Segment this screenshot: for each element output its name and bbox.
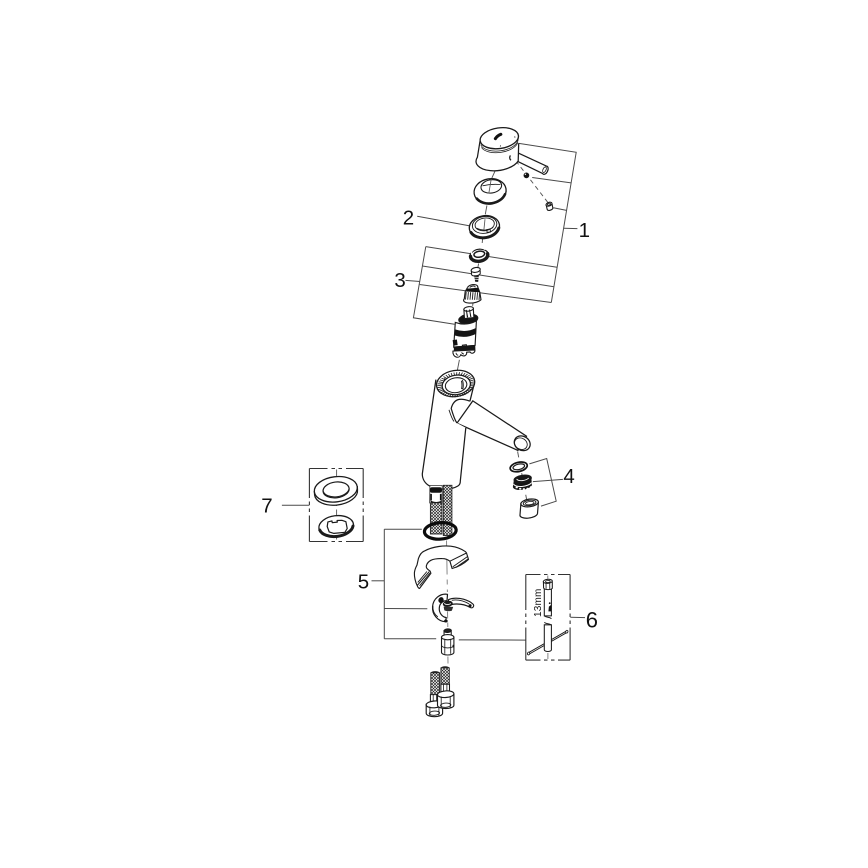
svg-text:5: 5	[358, 571, 369, 594]
svg-text:4: 4	[563, 465, 574, 488]
svg-text:7: 7	[261, 494, 272, 517]
svg-text:2: 2	[403, 206, 414, 229]
svg-text:3: 3	[394, 269, 405, 292]
svg-text:13mm: 13mm	[533, 588, 544, 617]
svg-text:1: 1	[579, 219, 590, 242]
svg-text:6: 6	[586, 607, 598, 632]
